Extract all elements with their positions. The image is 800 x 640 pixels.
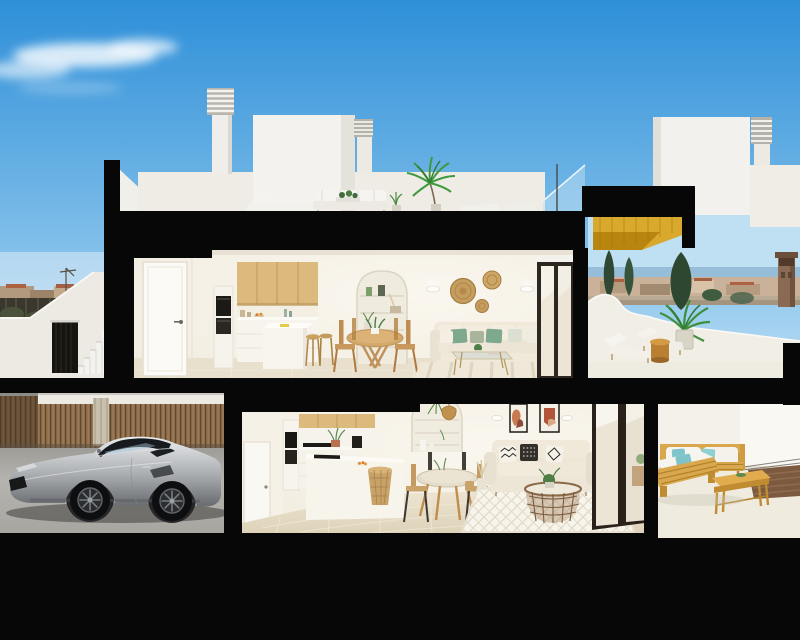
watchtower <box>775 252 798 307</box>
round-side-table <box>650 339 670 363</box>
car-rear-wheel <box>152 481 192 521</box>
party-wall-garage <box>224 392 242 534</box>
lower-terrace <box>652 404 800 538</box>
building-cutaway-render <box>0 0 800 640</box>
wall-sconce-upper-right <box>520 279 534 292</box>
car-front-wheel <box>70 480 110 520</box>
sliding-glass-door-lower <box>592 392 652 530</box>
tall-oven-column-upper <box>214 286 233 368</box>
foundation-band <box>0 533 800 640</box>
wood-upper-cabinets <box>237 262 318 306</box>
wall-sconce-upper-left <box>426 279 440 292</box>
chimney-vent-3 <box>751 117 772 170</box>
upper-floor-interior <box>133 248 585 388</box>
lower-floor-interior <box>238 392 652 535</box>
car-shadow <box>6 503 230 523</box>
carport-garage <box>0 390 230 535</box>
party-wall-terrace <box>644 378 658 538</box>
rattan-stool <box>368 467 392 505</box>
patterned-pillows <box>498 444 563 463</box>
roof-terrace-sofa <box>313 190 388 213</box>
sea-horizon <box>588 267 800 277</box>
sliding-glass-door-upper <box>537 256 575 380</box>
tall-oven-column-lower <box>283 420 299 490</box>
kitchen-backsplash-upper <box>237 306 318 319</box>
render-canvas <box>0 0 800 640</box>
interior-door-upper <box>143 262 187 376</box>
